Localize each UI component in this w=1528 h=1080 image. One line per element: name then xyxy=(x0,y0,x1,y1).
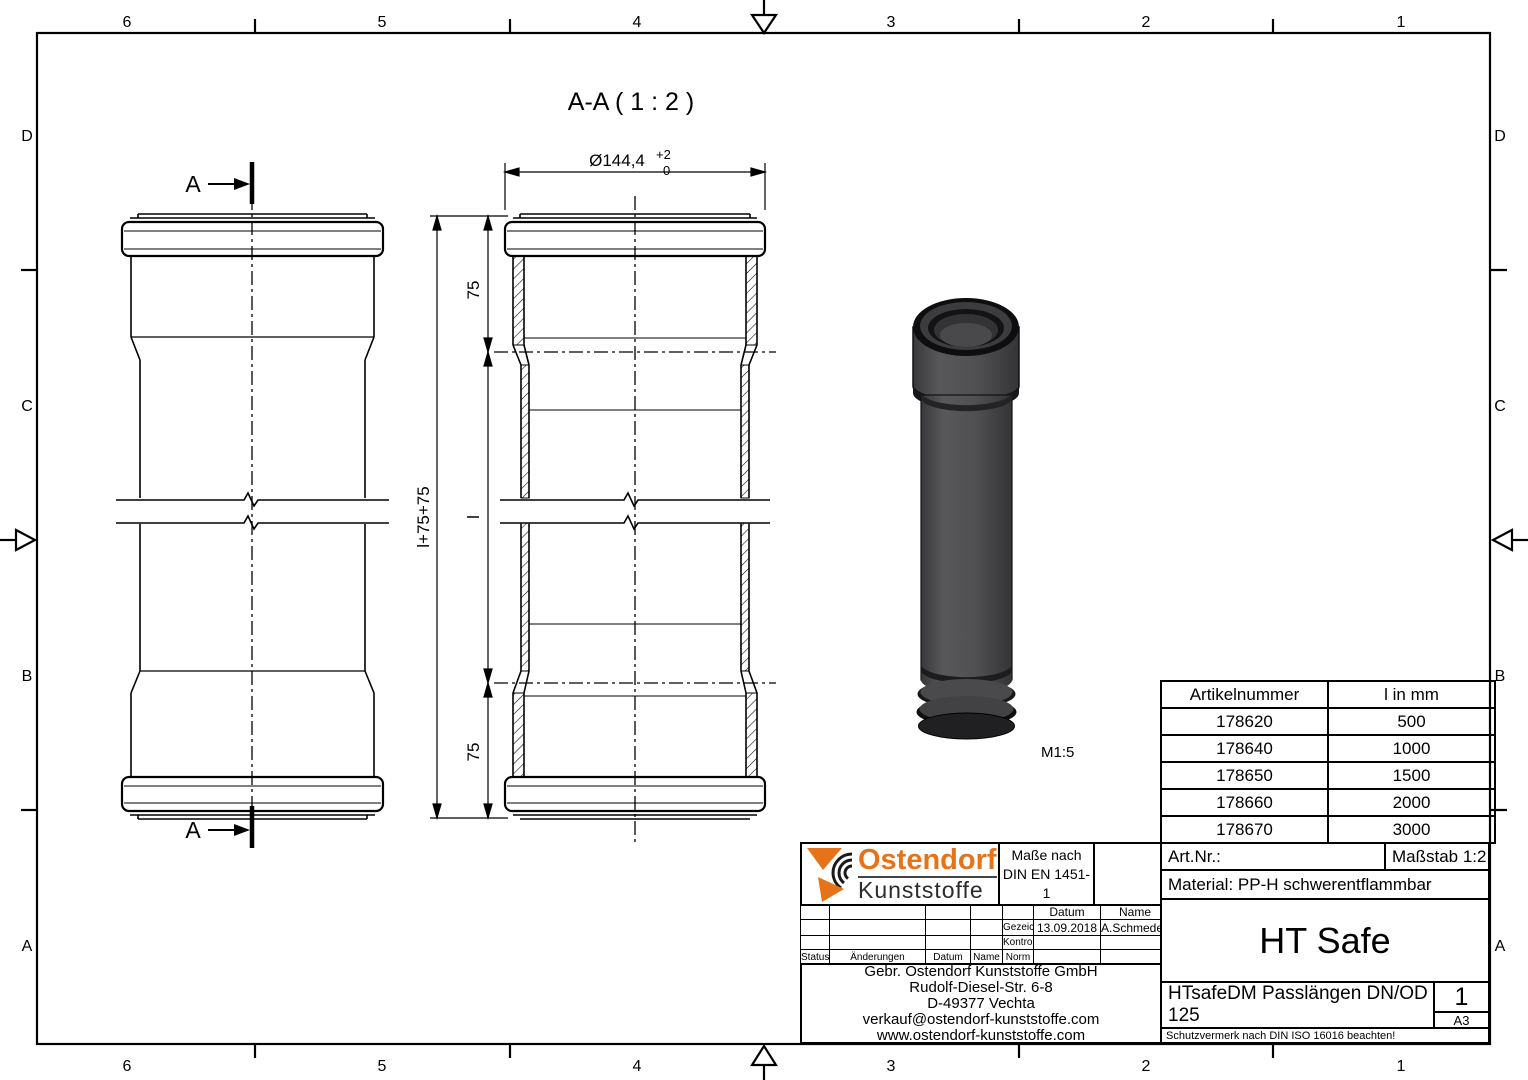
pipe-3d-render xyxy=(913,298,1019,739)
drawing-sheet: 6 5 4 3 2 1 6 5 4 3 2 1 D C B A D C B A … xyxy=(0,0,1528,1080)
column-header-l-in-mm: l in mm xyxy=(1328,681,1495,708)
article-number: 178640 xyxy=(1161,735,1328,762)
center-mark-left xyxy=(0,530,35,550)
dim-total-length-label: l+75+75 xyxy=(414,486,433,547)
zone-label: 5 xyxy=(378,14,387,31)
render-scale-label: M1:5 xyxy=(1041,744,1074,761)
dimension-lines xyxy=(430,163,765,818)
center-mark-top xyxy=(752,0,776,33)
product-name: HT Safe xyxy=(1160,898,1490,983)
company-logo: Ostendorf Kunststoffe xyxy=(800,842,1000,906)
pipe-elevation-view xyxy=(116,196,389,843)
address-line: www.ostendorf-kunststoffe.com xyxy=(802,1028,1160,1044)
address-line: verkauf@ostendorf-kunststoffe.com xyxy=(802,1012,1160,1028)
dim-length-label: l xyxy=(464,515,483,519)
dim-diameter-label: Ø144,4 xyxy=(589,151,645,170)
section-cut-marker-top: A xyxy=(185,162,252,204)
zone-label: 4 xyxy=(633,14,642,31)
address-line: Gebr. Ostendorf Kunststoffe GmbH xyxy=(802,964,1160,980)
dim-tolerance-lower: 0 xyxy=(663,163,670,178)
column-header-datum: Datum xyxy=(1034,905,1101,920)
article-number: 178670 xyxy=(1161,816,1328,843)
empty-cell xyxy=(1093,842,1162,906)
company-address: Gebr. Ostendorf Kunststoffe GmbH Rudolf-… xyxy=(800,963,1162,1044)
revision-table: Datum Name Gezeichn. 13.09.2018 A.Schmed… xyxy=(800,904,1170,965)
zone-label: 4 xyxy=(633,1058,642,1075)
zone-label: 2 xyxy=(1142,1058,1151,1075)
length-value: 1000 xyxy=(1328,735,1495,762)
ostendorf-logo-icon xyxy=(806,845,858,903)
standard-note-line2: DIN EN 1451-1 xyxy=(1000,865,1093,903)
article-number: 178650 xyxy=(1161,762,1328,789)
dimension-texts: Ø144,4 +2 0 l+75+75 75 l 75 xyxy=(414,147,671,761)
zone-label: C xyxy=(1494,398,1506,415)
column-header-artikelnummer: Artikelnummer xyxy=(1161,681,1328,708)
zone-label: 6 xyxy=(123,14,132,31)
zone-label: 3 xyxy=(887,14,896,31)
zone-label: C xyxy=(21,398,33,415)
center-mark-bottom xyxy=(752,1046,776,1080)
address-line: D-49377 Vechta xyxy=(802,996,1160,1012)
material-field: Material: PP-H schwerentflammbar xyxy=(1160,869,1490,900)
section-label-bottom: A xyxy=(185,817,201,843)
article-number-field: Art.Nr.: xyxy=(1160,842,1386,871)
length-value: 500 xyxy=(1328,708,1495,735)
protection-note: Schutzvermerk nach DIN ISO 16016 beachte… xyxy=(1160,1027,1490,1044)
sheet-number: 1 xyxy=(1433,981,1490,1013)
zone-label: 2 xyxy=(1142,14,1151,31)
zone-label: 1 xyxy=(1397,1058,1406,1075)
scale-field: Maßstab 1:2 xyxy=(1384,842,1490,871)
zone-label: B xyxy=(1495,668,1506,685)
zone-label: D xyxy=(1494,128,1506,145)
section-cut-marker-bottom: A xyxy=(185,806,252,848)
section-view-title: A-A ( 1 : 2 ) xyxy=(568,88,694,116)
logo-wordmark: Ostendorf xyxy=(858,846,997,875)
row-label-kontrolliert: Kontroll. xyxy=(1003,936,1034,950)
dim-socket-bottom-label: 75 xyxy=(464,743,483,762)
zone-label: 6 xyxy=(123,1058,132,1075)
zone-label: A xyxy=(1495,938,1506,955)
dim-tolerance-upper: +2 xyxy=(656,147,671,162)
zone-label: 1 xyxy=(1397,14,1406,31)
article-number: 178660 xyxy=(1161,789,1328,816)
dim-socket-top-label: 75 xyxy=(464,281,483,300)
zone-label: A xyxy=(22,938,33,955)
logo-subtitle: Kunststoffe xyxy=(858,876,997,902)
length-value: 2000 xyxy=(1328,789,1495,816)
article-table: Artikelnummer l in mm 178620 500 178640 … xyxy=(1160,680,1496,844)
table-row: 178660 2000 xyxy=(1161,789,1495,816)
standard-note-line1: Maße nach xyxy=(1000,846,1093,865)
zone-label: D xyxy=(21,128,33,145)
length-value: 3000 xyxy=(1328,816,1495,843)
address-line: Rudolf-Diesel-Str. 6-8 xyxy=(802,980,1160,996)
table-row: 178650 1500 xyxy=(1161,762,1495,789)
table-row: 178670 3000 xyxy=(1161,816,1495,843)
center-mark-right xyxy=(1493,530,1528,550)
section-label-top: A xyxy=(185,171,201,197)
drawing-title: HTsafeDM Passlängen DN/OD 125 xyxy=(1160,981,1435,1029)
zone-label: B xyxy=(22,668,33,685)
standard-note: Maße nach DIN EN 1451-1 xyxy=(998,842,1095,906)
pipe-section-view xyxy=(494,196,776,843)
drawn-date: 13.09.2018 xyxy=(1034,920,1101,936)
length-value: 1500 xyxy=(1328,762,1495,789)
zone-label: 3 xyxy=(887,1058,896,1075)
table-row: 178620 500 xyxy=(1161,708,1495,735)
article-number: 178620 xyxy=(1161,708,1328,735)
table-row: 178640 1000 xyxy=(1161,735,1495,762)
table-header-row: Artikelnummer l in mm xyxy=(1161,681,1495,708)
zone-label: 5 xyxy=(378,1058,387,1075)
row-label-gezeichnet: Gezeichn. xyxy=(1003,920,1034,936)
